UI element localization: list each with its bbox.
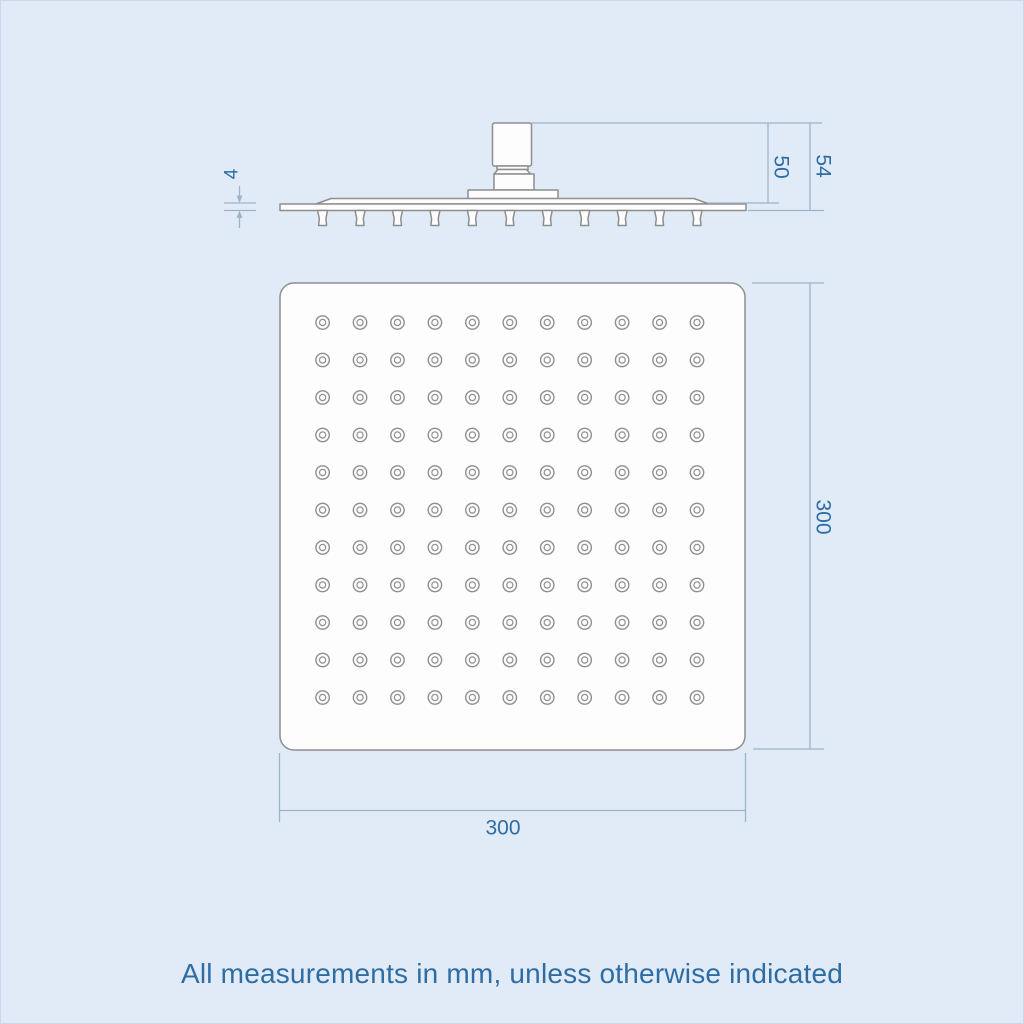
side-nozzle-stub: [467, 211, 477, 226]
side-nozzle-stub: [692, 211, 702, 226]
side-nozzle-row: [318, 211, 702, 226]
dimension-plate-thickness: 4: [222, 168, 257, 228]
side-nozzle-stub: [617, 211, 627, 226]
connector-body: [494, 174, 534, 190]
dimension-connector-height: 50: [531, 123, 822, 203]
inlet-pipe: [493, 123, 532, 166]
total-height-label: 54: [812, 154, 835, 178]
dimension-face-height: 300: [752, 283, 835, 749]
side-nozzle-stub: [355, 211, 365, 226]
head-top-layer: [316, 199, 709, 205]
side-nozzle-stub: [505, 211, 515, 226]
dimension-face-width: 300: [280, 753, 746, 840]
side-nozzle-stub: [318, 211, 328, 226]
plate-thickness-label: 4: [222, 168, 243, 179]
shower-head-technical-drawing: 4 50 54 300 300: [0, 0, 1024, 1024]
front-view: [280, 283, 745, 750]
side-nozzle-stub: [580, 211, 590, 226]
side-nozzle-stub: [542, 211, 552, 226]
head-plate: [280, 204, 746, 211]
connector-height-label: 50: [770, 155, 793, 178]
side-nozzle-stub: [430, 211, 440, 226]
face-width-label: 300: [485, 817, 520, 840]
side-nozzle-stub: [655, 211, 665, 226]
measurement-units-note: All measurements in mm, unless otherwise…: [0, 958, 1024, 990]
side-view: [280, 123, 746, 226]
side-nozzle-stub: [392, 211, 402, 226]
face-height-label: 300: [812, 499, 835, 534]
